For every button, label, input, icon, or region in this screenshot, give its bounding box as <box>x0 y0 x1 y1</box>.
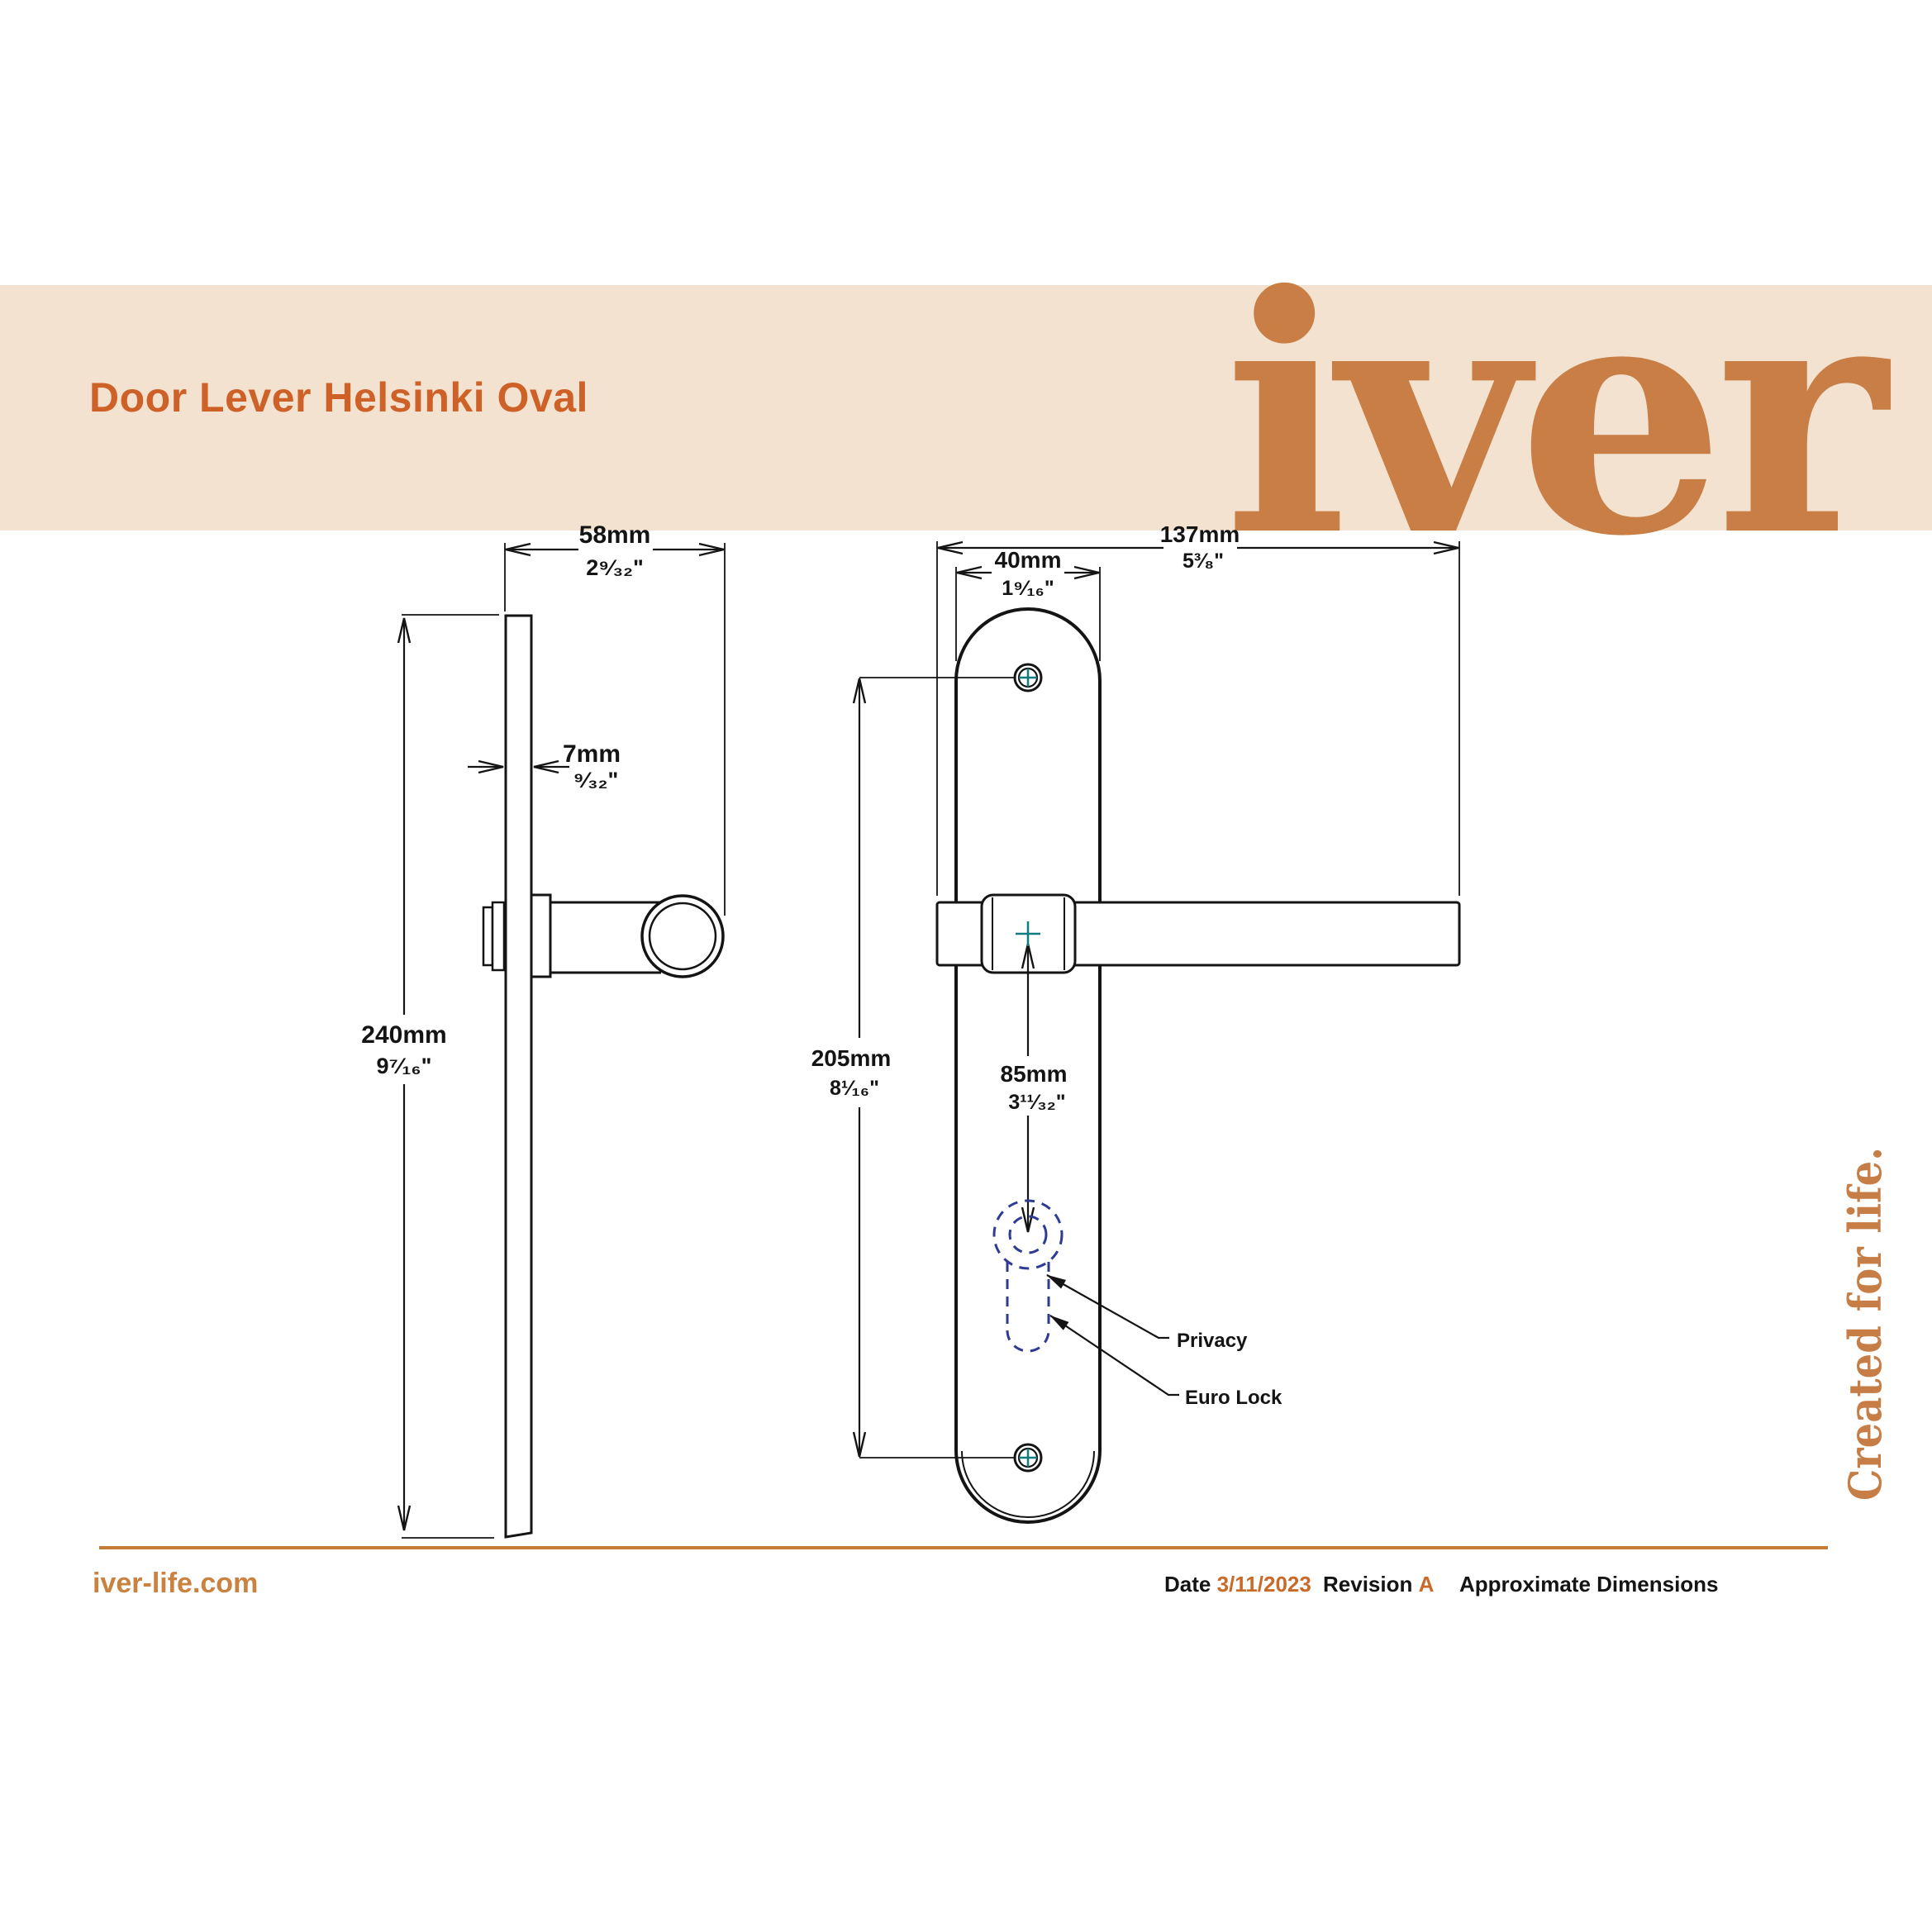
revision-value: A <box>1419 1572 1435 1597</box>
dim-7-in: ⁹⁄₃₂" <box>573 768 619 792</box>
dim-85-in: 3¹¹⁄₃₂" <box>1008 1091 1065 1114</box>
lever-grip-outer <box>642 896 723 977</box>
dim-240-in: 9⁷⁄₁₆" <box>377 1054 432 1078</box>
spindle-nut <box>493 902 504 970</box>
dim-240-mm: 240mm <box>361 1021 446 1049</box>
dim-137-mm: 137mm <box>1160 521 1240 547</box>
tagline-vertical: Created for life. <box>1839 1147 1892 1501</box>
euro-lock-label: Euro Lock <box>1185 1387 1282 1409</box>
dim-40-mm: 40mm <box>995 547 1062 573</box>
revision-row: Revision A <box>1323 1572 1434 1597</box>
dim-40-in: 1⁹⁄₁₆" <box>1002 577 1054 600</box>
date-label: Date <box>1164 1572 1211 1597</box>
dim-7-mm: 7mm <box>563 740 621 768</box>
dim-58-extension-lines <box>505 543 725 916</box>
dimensions-note: Approximate Dimensions <box>1459 1572 1719 1597</box>
dim-137-in: 5³⁄₈" <box>1183 550 1224 573</box>
date-row: Date 3/11/2023 <box>1164 1572 1311 1597</box>
dim-205-mm: 205mm <box>811 1045 892 1071</box>
privacy-label: Privacy <box>1177 1330 1248 1352</box>
date-value: 3/11/2023 <box>1217 1572 1311 1597</box>
dim-205-in: 8¹⁄₁₆" <box>830 1077 879 1100</box>
dim-85-mm: 85mm <box>1001 1061 1068 1087</box>
technical-drawing: iver Created for life. <box>0 0 1932 1932</box>
spec-sheet-page: Door Lever Helsinki Oval iver Created fo… <box>0 0 1932 1932</box>
website-link[interactable]: iver-life.com <box>93 1568 258 1600</box>
side-plate <box>506 616 531 1537</box>
side-view <box>402 543 725 1538</box>
revision-label: Revision <box>1323 1572 1412 1597</box>
iver-logo: iver <box>1224 225 1894 608</box>
dim-58-in: 2⁹⁄₃₂" <box>586 555 644 580</box>
front-view <box>859 541 1459 1522</box>
dim-58-mm: 58mm <box>579 521 651 549</box>
footer-divider <box>99 1546 1828 1549</box>
spindle-end <box>483 907 493 965</box>
lever-collar-side <box>531 895 550 977</box>
